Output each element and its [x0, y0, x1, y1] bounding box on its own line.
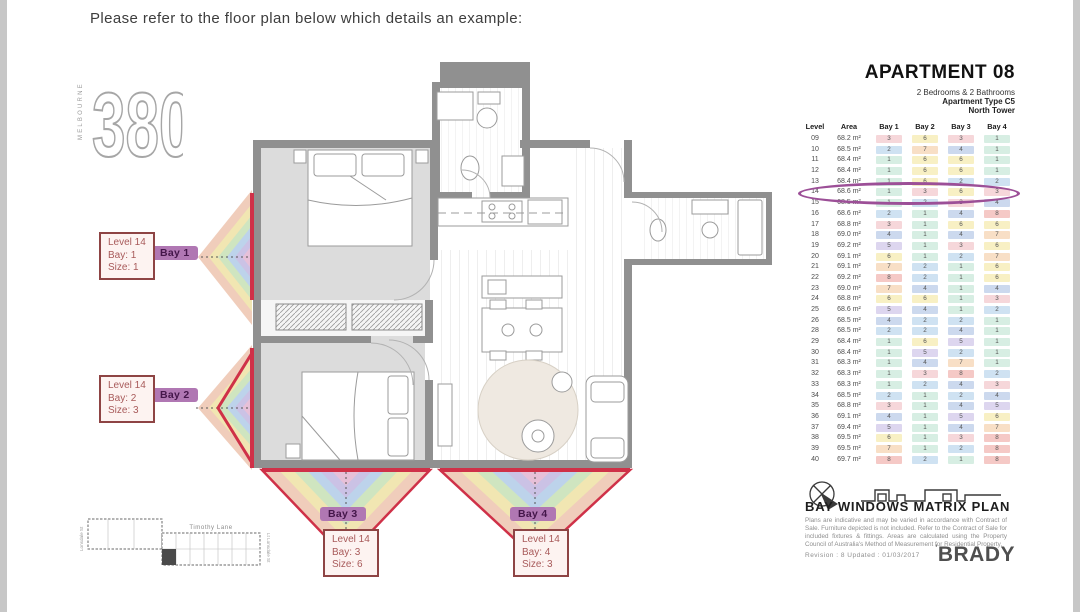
bay-size-cell: 5: [871, 423, 907, 434]
bay-size-value: 7: [876, 285, 902, 293]
bay-size-value: 1: [876, 167, 902, 175]
bay-size-cell: 8: [871, 273, 907, 284]
bay-size-value: 1: [912, 210, 938, 218]
bay-size-value: 8: [876, 456, 902, 464]
bay-size-value: 2: [948, 392, 974, 400]
bay-size-value: 6: [912, 178, 938, 186]
table-row: 2369.0 m²7414: [803, 284, 1015, 295]
area-cell: 69.0 m²: [827, 284, 871, 295]
bay-size-cell: 6: [979, 241, 1015, 252]
bay-size-value: 4: [984, 285, 1010, 293]
bay-size-cell: 1: [979, 348, 1015, 359]
bay-size-value: 6: [948, 188, 974, 196]
bay-size-value: 3: [876, 135, 902, 143]
site-street-label: Timothy Lane: [189, 525, 232, 531]
bay-1-info-box: Level 14 Bay: 1 Size: 1: [99, 232, 155, 280]
bay-4-pill: Bay 4: [510, 507, 556, 521]
bay-size-cell: 1: [871, 358, 907, 369]
bay-size-cell: 2: [907, 262, 943, 273]
bay-2-pill: Bay 2: [152, 388, 198, 402]
bay-size-value: 1: [984, 338, 1010, 346]
bay-size-cell: 6: [871, 294, 907, 305]
level-cell: 21: [803, 262, 827, 273]
bay-4-number: Bay: 4: [522, 547, 560, 560]
bay-size-value: 4: [912, 285, 938, 293]
level-cell: 38: [803, 433, 827, 444]
bay-size-cell: 1: [907, 433, 943, 444]
bay-size-value: 3: [984, 188, 1010, 196]
bay-size-value: 1: [948, 456, 974, 464]
area-cell: 68.4 m²: [827, 337, 871, 348]
bay-size-value: 1: [912, 434, 938, 442]
bay-size-value: 7: [948, 359, 974, 367]
bay-size-cell: 2: [907, 316, 943, 327]
bay-size-cell: 4: [979, 198, 1015, 209]
bay-size-value: 4: [948, 402, 974, 410]
wardrobe-icon: [352, 304, 422, 330]
bay-size-value: 1: [984, 156, 1010, 164]
bay-size-cell: 1: [871, 177, 907, 188]
bay-size-cell: 2: [943, 348, 979, 359]
bay-size-value: 2: [948, 253, 974, 261]
bay-size-value: 1: [984, 135, 1010, 143]
bay-size-cell: 2: [943, 444, 979, 455]
bay-size-cell: 1: [871, 187, 907, 198]
table-row: 1869.0 m²4147: [803, 230, 1015, 241]
bay-size-cell: 6: [943, 220, 979, 231]
apartment-header: APARTMENT 08 2 Bedrooms & 2 Bathrooms Ap…: [805, 62, 1015, 115]
area-cell: 68.2 m²: [827, 134, 871, 145]
bay-size-cell: 1: [871, 348, 907, 359]
bay-size-cell: 2: [943, 177, 979, 188]
table-row: 1568.5 m²1234: [803, 198, 1015, 209]
bay-size-cell: 8: [979, 455, 1015, 466]
bay-matrix-table: LevelAreaBay 1Bay 2Bay 3Bay 40968.2 m²36…: [803, 120, 1015, 465]
bay-size-cell: 1: [979, 337, 1015, 348]
bay-size-cell: 1: [943, 284, 979, 295]
bay-size-cell: 3: [979, 187, 1015, 198]
bay-size-cell: 3: [871, 134, 907, 145]
bay-size-value: 1: [876, 199, 902, 207]
bay-size-cell: 1: [979, 326, 1015, 337]
bay-size-value: 1: [948, 263, 974, 271]
level-cell: 24: [803, 294, 827, 305]
bay-size-value: 2: [876, 327, 902, 335]
bay-4-info-box: Level 14 Bay: 4 Size: 3: [513, 529, 569, 577]
apartment-title: APARTMENT 08: [805, 62, 1015, 84]
table-row: 2568.6 m²5412: [803, 305, 1015, 316]
bay-size-value: 1: [948, 306, 974, 314]
level-cell: 37: [803, 423, 827, 434]
bay-size-cell: 1: [907, 230, 943, 241]
bay-size-value: 6: [984, 242, 1010, 250]
bay-size-value: 2: [912, 317, 938, 325]
bay-size-cell: 3: [979, 380, 1015, 391]
bay-size-value: 1: [912, 392, 938, 400]
bay-4-level: Level 14: [522, 534, 560, 547]
table-header-row: LevelAreaBay 1Bay 2Bay 3Bay 4: [803, 120, 1015, 134]
bay-size-value: 4: [912, 306, 938, 314]
bay-4-size: Size: 3: [522, 559, 560, 572]
column-header: Level: [803, 120, 827, 134]
revision-text: Revision : 8 Updated : 01/03/2017: [805, 552, 920, 559]
bay-size-value: 3: [876, 221, 902, 229]
bay-size-value: 2: [948, 317, 974, 325]
bay-2-number: Bay: 2: [108, 393, 146, 406]
bay-size-value: 7: [912, 146, 938, 154]
table-row: 3969.5 m²7128: [803, 444, 1015, 455]
bay-size-value: 1: [948, 295, 974, 303]
bay-size-cell: 1: [979, 316, 1015, 327]
bay-size-cell: 6: [907, 294, 943, 305]
bay-size-cell: 1: [871, 166, 907, 177]
apartment-subtitle-type: Apartment Type C5: [805, 97, 1015, 106]
table-row: 1969.2 m²5136: [803, 241, 1015, 252]
bay-size-cell: 8: [979, 444, 1015, 455]
bay-size-cell: 3: [979, 294, 1015, 305]
table-row: 0968.2 m²3631: [803, 134, 1015, 145]
bay-2-size: Size: 3: [108, 405, 146, 418]
bay-size-cell: 7: [907, 145, 943, 156]
dining-icons: [482, 276, 562, 360]
bay-size-value: 4: [948, 327, 974, 335]
bay-size-cell: 2: [943, 316, 979, 327]
bay-size-value: 6: [912, 167, 938, 175]
level-cell: 35: [803, 401, 827, 412]
bay-size-cell: 3: [943, 241, 979, 252]
bed-2-icon: [286, 372, 414, 460]
bay-size-cell: 5: [871, 305, 907, 316]
floor-plan-page: Please refer to the floor plan below whi…: [0, 0, 1080, 612]
area-cell: 68.3 m²: [827, 369, 871, 380]
bay-size-cell: 7: [871, 444, 907, 455]
level-cell: 18: [803, 230, 827, 241]
bay-size-value: 1: [912, 445, 938, 453]
bay-size-value: 5: [984, 402, 1010, 410]
table-row: 3468.5 m²2124: [803, 391, 1015, 402]
site-block-west: [88, 519, 162, 549]
bay-size-value: 2: [984, 178, 1010, 186]
bay-size-cell: 2: [907, 380, 943, 391]
bay-size-cell: 5: [907, 348, 943, 359]
bay-size-cell: 4: [943, 380, 979, 391]
bay-size-cell: 5: [979, 401, 1015, 412]
level-cell: 22: [803, 273, 827, 284]
bay-size-cell: 7: [943, 358, 979, 369]
bay-size-value: 7: [984, 231, 1010, 239]
table-row: 1668.6 m²2148: [803, 209, 1015, 220]
bay-size-value: 4: [984, 199, 1010, 207]
bay-size-cell: 4: [943, 423, 979, 434]
bay-size-value: 1: [984, 327, 1010, 335]
table-row: 3669.1 m²4156: [803, 412, 1015, 423]
bay-1-number: Bay: 1: [108, 250, 146, 263]
bay-size-value: 4: [876, 317, 902, 325]
bay-size-cell: 6: [907, 177, 943, 188]
bay-3-level: Level 14: [332, 534, 370, 547]
bay-size-cell: 7: [979, 252, 1015, 263]
bay-size-value: 8: [984, 210, 1010, 218]
level-cell: 10: [803, 145, 827, 156]
bay-size-cell: 8: [943, 369, 979, 380]
bay-size-value: 2: [912, 327, 938, 335]
bay-size-cell: 4: [907, 358, 943, 369]
page-title: Please refer to the floor plan below whi…: [90, 10, 523, 27]
area-cell: 68.3 m²: [827, 380, 871, 391]
level-cell: 32: [803, 369, 827, 380]
bay-size-value: 4: [984, 392, 1010, 400]
level-cell: 28: [803, 326, 827, 337]
bay-size-value: 6: [912, 295, 938, 303]
wardrobe-icon: [276, 304, 346, 330]
bay-size-cell: 6: [907, 155, 943, 166]
bay-size-cell: 2: [943, 391, 979, 402]
table-row: 1768.8 m²3166: [803, 220, 1015, 231]
bay-3-info-box: Level 14 Bay: 3 Size: 6: [323, 529, 379, 577]
bay-size-value: 4: [948, 231, 974, 239]
bay-size-value: 7: [984, 424, 1010, 432]
table-row: 2169.1 m²7216: [803, 262, 1015, 273]
area-cell: 69.1 m²: [827, 412, 871, 423]
bay-size-cell: 1: [871, 380, 907, 391]
bay-size-cell: 1: [871, 369, 907, 380]
bay-size-value: 6: [912, 156, 938, 164]
bay-size-cell: 4: [979, 284, 1015, 295]
bay-2-info-box: Level 14 Bay: 2 Size: 3: [99, 375, 155, 423]
bay-size-cell: 4: [943, 326, 979, 337]
bay-size-cell: 4: [871, 230, 907, 241]
table-row: 2668.5 m²4221: [803, 316, 1015, 327]
bay-size-value: 6: [948, 167, 974, 175]
area-cell: 68.4 m²: [827, 166, 871, 177]
bay-size-cell: 2: [871, 326, 907, 337]
bay-size-cell: 4: [943, 145, 979, 156]
bay-size-cell: 1: [979, 134, 1015, 145]
apartment-subtitle-beds: 2 Bedrooms & 2 Bathrooms: [805, 88, 1015, 97]
logo-number-text: 380: [92, 75, 183, 170]
bay-size-value: 6: [948, 221, 974, 229]
bay-size-cell: 3: [943, 134, 979, 145]
bay-2-level: Level 14: [108, 380, 146, 393]
site-right-street-label: Lt Lonsdale St: [266, 533, 271, 563]
bay-size-value: 3: [876, 402, 902, 410]
bay-3-size: Size: 6: [332, 559, 370, 572]
bay-size-value: 2: [912, 274, 938, 282]
level-cell: 20: [803, 252, 827, 263]
area-cell: 68.8 m²: [827, 294, 871, 305]
table-row: 1168.4 m²1661: [803, 155, 1015, 166]
bay-size-cell: 4: [943, 230, 979, 241]
level-cell: 13: [803, 177, 827, 188]
bay-size-value: 4: [876, 413, 902, 421]
area-cell: 69.2 m²: [827, 241, 871, 252]
bay-size-value: 1: [876, 381, 902, 389]
bay-size-cell: 4: [943, 401, 979, 412]
bay-size-cell: 3: [907, 187, 943, 198]
bay-size-value: 1: [912, 253, 938, 261]
area-cell: 69.5 m²: [827, 433, 871, 444]
bay-size-cell: 2: [943, 252, 979, 263]
level-cell: 14: [803, 187, 827, 198]
logo-city-text: MELBOURNE: [78, 82, 84, 140]
area-cell: 68.6 m²: [827, 187, 871, 198]
level-cell: 25: [803, 305, 827, 316]
bay-size-value: 2: [912, 263, 938, 271]
apartment-subtitle-tower: North Tower: [805, 106, 1015, 115]
level-cell: 34: [803, 391, 827, 402]
brady-logo-text: BRADY: [938, 543, 1015, 566]
bay-size-cell: 2: [871, 391, 907, 402]
bay-size-cell: 4: [979, 391, 1015, 402]
bay-size-cell: 4: [871, 412, 907, 423]
bay-size-value: 4: [876, 231, 902, 239]
level-cell: 19: [803, 241, 827, 252]
area-cell: 69.2 m²: [827, 273, 871, 284]
kitchen-icons: [438, 198, 568, 226]
matrix-plan-title: BAY WINDOWS MATRIX PLAN: [805, 499, 1010, 514]
bay-size-value: 2: [912, 199, 938, 207]
bay-size-value: 1: [912, 424, 938, 432]
bay-1-pill: Bay 1: [152, 246, 198, 260]
bay-size-value: 5: [912, 349, 938, 357]
bay-size-value: 1: [912, 413, 938, 421]
bay-size-value: 6: [876, 295, 902, 303]
bay-size-cell: 1: [943, 455, 979, 466]
bay-size-cell: 1: [907, 220, 943, 231]
bay-size-cell: 8: [871, 455, 907, 466]
bay-size-cell: 1: [907, 391, 943, 402]
bay-size-value: 1: [876, 156, 902, 164]
bay-size-value: 4: [912, 359, 938, 367]
level-cell: 15: [803, 198, 827, 209]
bay-size-value: 4: [948, 210, 974, 218]
level-cell: 17: [803, 220, 827, 231]
bay-size-cell: 2: [871, 209, 907, 220]
bay-size-value: 2: [876, 392, 902, 400]
bay-size-cell: 6: [979, 220, 1015, 231]
bay-size-cell: 3: [907, 369, 943, 380]
bay-size-cell: 2: [907, 455, 943, 466]
table-row: 3268.3 m²1382: [803, 369, 1015, 380]
bay-size-cell: 4: [907, 284, 943, 295]
bay-size-cell: 2: [979, 177, 1015, 188]
bay-3-number: Bay: 3: [332, 547, 370, 560]
bay-size-cell: 1: [943, 305, 979, 316]
table-row: 3869.5 m²6138: [803, 433, 1015, 444]
bay-size-cell: 2: [871, 145, 907, 156]
table-row: 2868.5 m²2241: [803, 326, 1015, 337]
logo-380: MELBOURNE 380: [68, 52, 183, 170]
bay-size-value: 6: [876, 434, 902, 442]
bay-size-cell: 1: [979, 155, 1015, 166]
bay-size-cell: 1: [979, 166, 1015, 177]
bay-size-value: 1: [948, 285, 974, 293]
bay-size-cell: 2: [979, 369, 1015, 380]
bay-size-cell: 1: [943, 294, 979, 305]
bay-size-cell: 1: [907, 412, 943, 423]
bay-size-value: 6: [948, 156, 974, 164]
bay-size-cell: 2: [907, 198, 943, 209]
bay-size-cell: 6: [943, 166, 979, 177]
table-row: 3068.4 m²1521: [803, 348, 1015, 359]
bay-size-value: 2: [948, 445, 974, 453]
bay-size-cell: 1: [979, 145, 1015, 156]
bay-size-value: 1: [912, 231, 938, 239]
right-edge-strip: [1073, 0, 1080, 612]
bay-size-value: 3: [984, 295, 1010, 303]
bay-size-value: 1: [876, 338, 902, 346]
bay-size-cell: 1: [943, 262, 979, 273]
table-row: 1268.4 m²1661: [803, 166, 1015, 177]
bay-size-value: 7: [876, 263, 902, 271]
bay-size-value: 6: [984, 413, 1010, 421]
table-row: 2968.4 m²1651: [803, 337, 1015, 348]
column-header: Bay 4: [979, 120, 1015, 134]
level-cell: 16: [803, 209, 827, 220]
level-cell: 29: [803, 337, 827, 348]
bay-size-cell: 3: [871, 401, 907, 412]
level-cell: 11: [803, 155, 827, 166]
bay-size-value: 2: [948, 349, 974, 357]
level-cell: 23: [803, 284, 827, 295]
table-row: 3168.3 m²1471: [803, 358, 1015, 369]
bay-size-value: 8: [984, 456, 1010, 464]
left-edge-strip: [0, 0, 7, 612]
bay-size-cell: 1: [907, 401, 943, 412]
bay-size-cell: 6: [979, 412, 1015, 423]
bay-size-cell: 1: [871, 155, 907, 166]
level-cell: 33: [803, 380, 827, 391]
table-row: 3568.8 m²3145: [803, 401, 1015, 412]
bay-size-value: 6: [984, 274, 1010, 282]
area-cell: 68.6 m²: [827, 209, 871, 220]
bay-size-cell: 1: [907, 209, 943, 220]
bay-size-cell: 1: [907, 444, 943, 455]
bay-size-value: 1: [876, 188, 902, 196]
bay-size-cell: 6: [871, 433, 907, 444]
table-row: 4069.7 m²8218: [803, 455, 1015, 466]
bay-size-value: 7: [984, 253, 1010, 261]
area-cell: 68.5 m²: [827, 198, 871, 209]
bay-size-cell: 6: [943, 155, 979, 166]
level-cell: 12: [803, 166, 827, 177]
bay-size-value: 2: [912, 381, 938, 389]
bay-size-cell: 4: [871, 316, 907, 327]
column-header: Bay 2: [907, 120, 943, 134]
area-cell: 69.4 m²: [827, 423, 871, 434]
bay-size-value: 1: [876, 370, 902, 378]
level-cell: 31: [803, 358, 827, 369]
bay-size-cell: 6: [979, 262, 1015, 273]
table-row: 3769.4 m²5147: [803, 423, 1015, 434]
bay-size-cell: 6: [943, 187, 979, 198]
bay-size-value: 6: [984, 263, 1010, 271]
bay-size-value: 3: [912, 370, 938, 378]
bay-size-cell: 6: [871, 252, 907, 263]
area-cell: 68.5 m²: [827, 316, 871, 327]
bay-size-value: 1: [912, 242, 938, 250]
bay-size-cell: 2: [979, 305, 1015, 316]
bay-size-value: 1: [984, 359, 1010, 367]
bay-size-value: 1: [876, 178, 902, 186]
bay-size-value: 1: [984, 349, 1010, 357]
bay-size-value: 8: [984, 445, 1010, 453]
bay-size-value: 4: [948, 146, 974, 154]
bay-size-value: 8: [984, 434, 1010, 442]
table-row: 2468.8 m²6613: [803, 294, 1015, 305]
bay-size-value: 8: [876, 274, 902, 282]
bay-size-value: 3: [948, 242, 974, 250]
